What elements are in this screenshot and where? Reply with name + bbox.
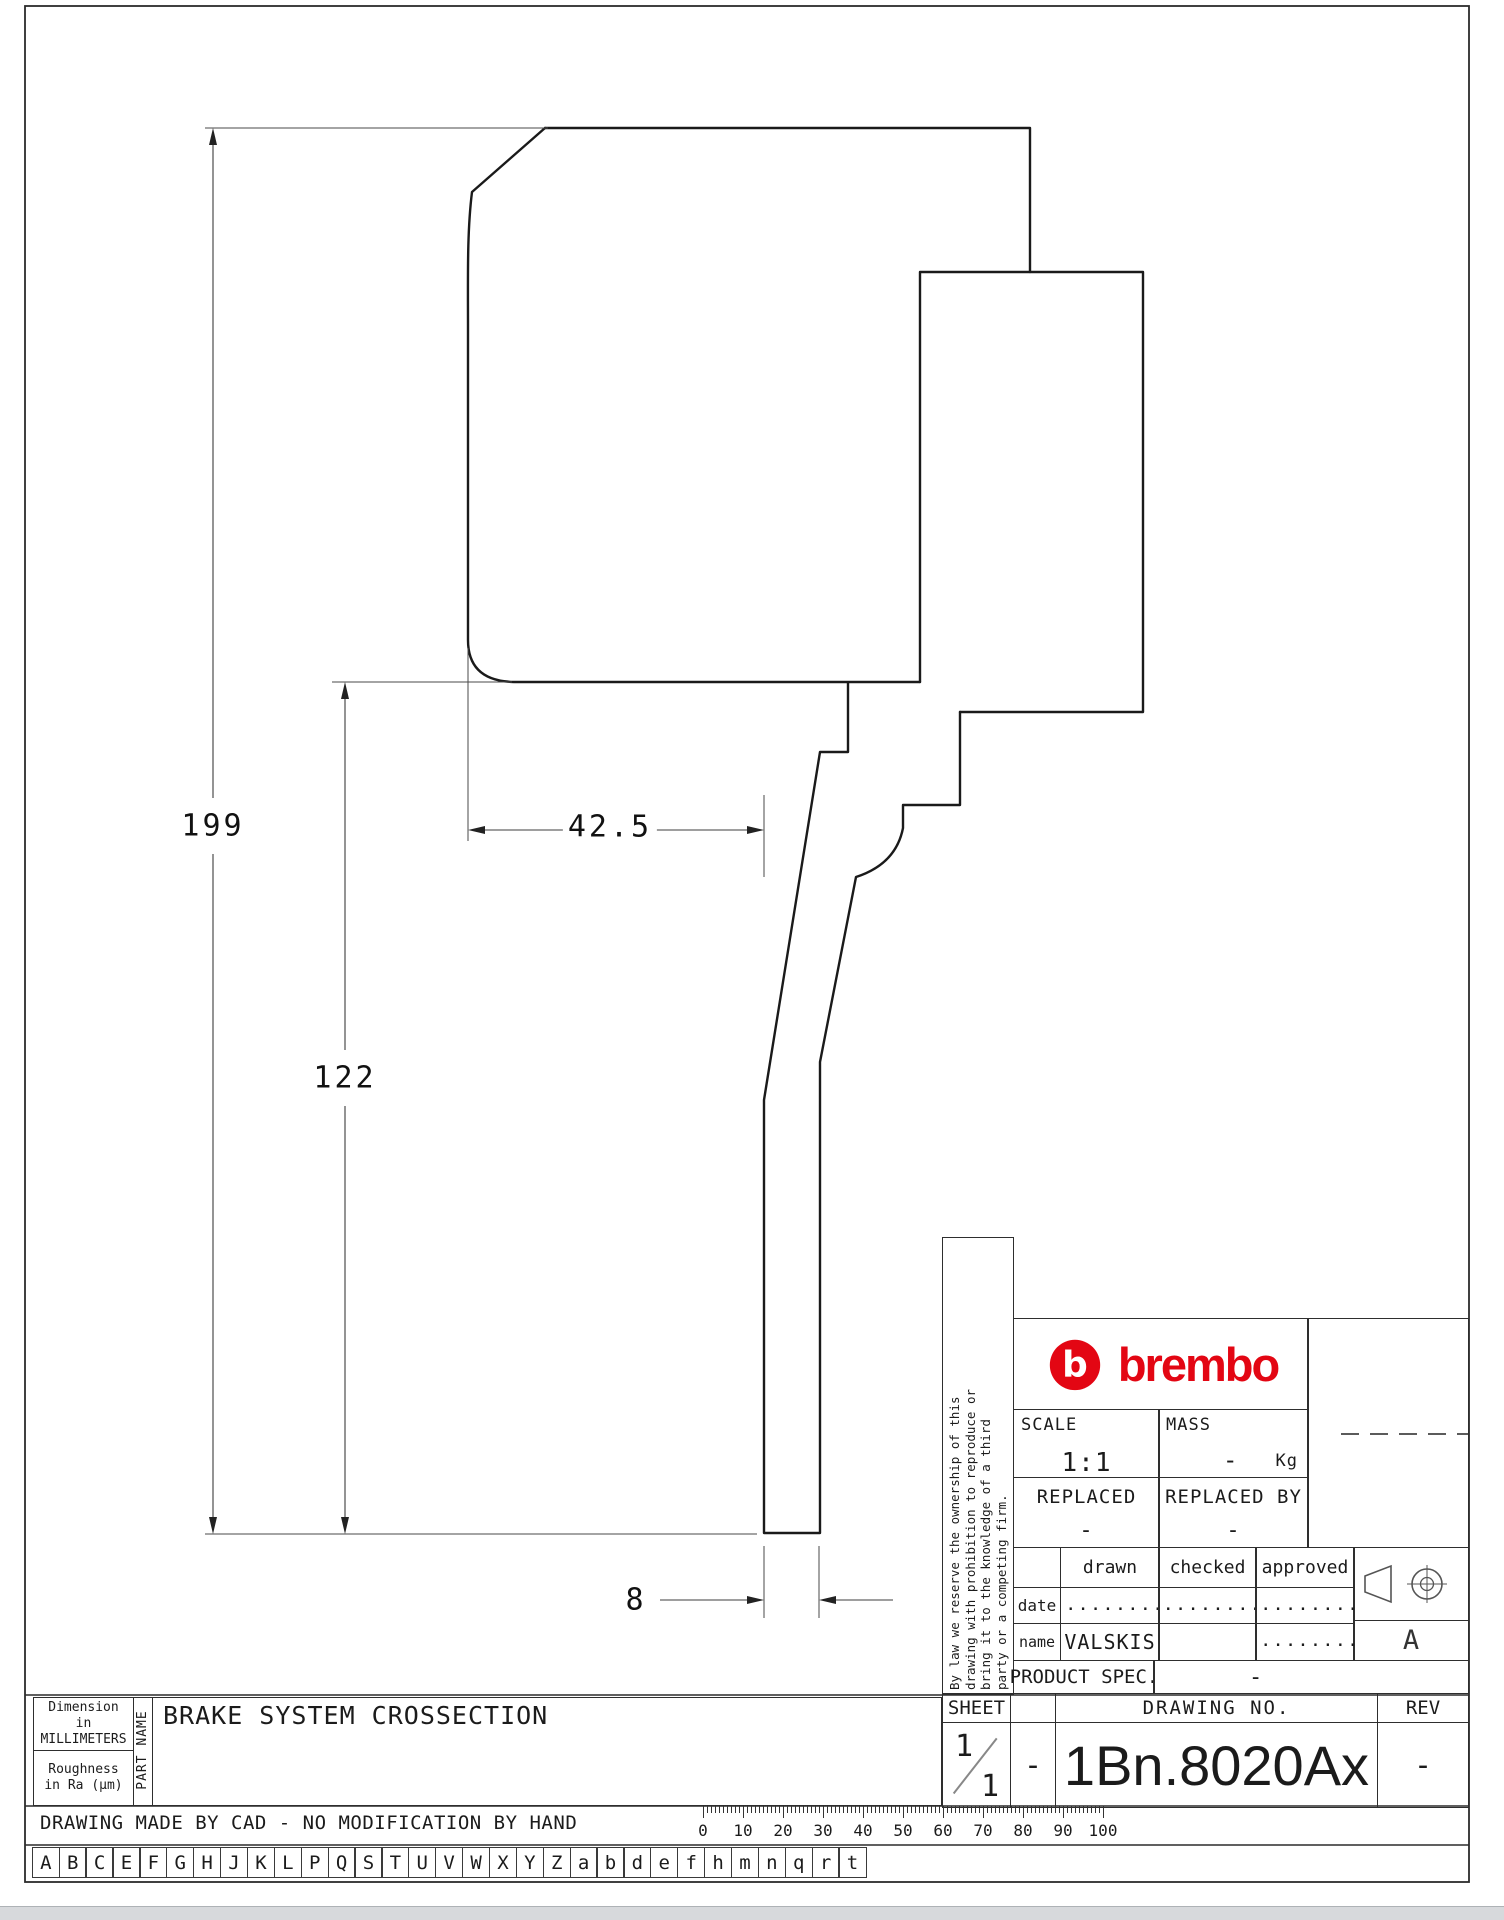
ruler-tick — [855, 1806, 856, 1813]
ruler-tick — [1047, 1806, 1048, 1813]
legal-strip: By law we reserve the ownership of this … — [942, 1237, 1014, 1695]
alphabet-cell: L — [274, 1847, 302, 1878]
date-approved-dots: ......... — [1255, 1587, 1355, 1624]
cad-note: DRAWING MADE BY CAD - NO MODIFICATION BY… — [40, 1812, 577, 1834]
product-spec-value-cell: - — [1153, 1660, 1469, 1694]
ruler-tick — [891, 1806, 892, 1813]
ruler-tick — [831, 1806, 832, 1813]
revision-letter-cell: A — [1353, 1620, 1469, 1661]
ruler-tick — [859, 1806, 860, 1813]
replaced-cell: REPLACED - — [1013, 1477, 1160, 1548]
ruler-tick — [1043, 1806, 1044, 1813]
scale-cell: SCALE 1:1 — [1013, 1409, 1160, 1478]
replaced-value: - — [1079, 1518, 1093, 1543]
dim-leg-width: 8 — [620, 1583, 651, 1618]
ruler-tick — [871, 1806, 872, 1813]
ruler-label: 40 — [853, 1821, 872, 1840]
rev-value: - — [1377, 1722, 1469, 1808]
alphabet-cell: E — [112, 1847, 140, 1878]
projection-symbol-cell — [1353, 1547, 1469, 1621]
sheet-num: 1 — [955, 1729, 974, 1764]
ruler-tick — [1035, 1806, 1036, 1813]
ruler-tick — [719, 1806, 720, 1813]
legal-text: By law we reserve the ownership of this … — [947, 1238, 1011, 1690]
ruler-tick — [795, 1806, 796, 1813]
sheet-den: 1 — [981, 1769, 1000, 1804]
ruler-label: 70 — [973, 1821, 992, 1840]
drawn-header: drawn — [1060, 1547, 1160, 1588]
alphabet-cell: C — [85, 1847, 113, 1878]
extension-lines — [205, 128, 819, 1618]
ruler-tick — [939, 1806, 940, 1813]
brand-wordmark: brembo — [1118, 1337, 1278, 1392]
scale-label: SCALE — [1021, 1415, 1077, 1435]
ruler-tick — [723, 1806, 724, 1813]
svg-text:b: b — [1062, 1345, 1088, 1386]
ruler-tick — [895, 1806, 896, 1813]
dimension-lines — [209, 128, 893, 1604]
ruler-tick — [1023, 1806, 1024, 1818]
scale-ruler: 0102030405060708090100 — [703, 1806, 1107, 1844]
name-label: name — [1013, 1623, 1061, 1661]
approved-header: approved — [1255, 1547, 1355, 1588]
ruler-tick — [839, 1806, 840, 1813]
alphabet-cell: a — [570, 1847, 598, 1878]
ruler-tick — [875, 1806, 876, 1813]
mass-label: MASS — [1166, 1415, 1211, 1435]
alphabet-cell: V — [435, 1847, 463, 1878]
ruler-tick — [811, 1806, 812, 1813]
dim-lower-height: 122 — [308, 1061, 381, 1096]
ruler-tick — [731, 1806, 732, 1813]
ruler-tick — [751, 1806, 752, 1813]
ruler-tick — [967, 1806, 968, 1813]
ruler-tick — [755, 1806, 756, 1813]
alphabet-cell: J — [220, 1847, 248, 1878]
reference-cell — [1307, 1318, 1469, 1548]
alphabet-cell: T — [381, 1847, 409, 1878]
alphabet-cell: K — [247, 1847, 275, 1878]
ruler-tick — [999, 1806, 1000, 1813]
ruler-tick — [915, 1806, 916, 1813]
ruler-tick — [779, 1806, 780, 1813]
alphabet-cell: h — [704, 1847, 732, 1878]
ruler-tick — [1015, 1806, 1016, 1813]
alphabet-cell: S — [354, 1847, 382, 1878]
ruler-label: 30 — [813, 1821, 832, 1840]
ruler-tick — [819, 1806, 820, 1813]
mass-unit: Kg — [1276, 1451, 1298, 1471]
dim-total-height: 199 — [176, 809, 249, 844]
ruler-tick — [887, 1806, 888, 1813]
ruler-tick — [995, 1806, 996, 1813]
ruler-tick — [927, 1806, 928, 1813]
alphabet-cell: H — [193, 1847, 221, 1878]
alphabet-cell: X — [489, 1847, 517, 1878]
ruler-tick — [987, 1806, 988, 1813]
ruler-label: 0 — [698, 1821, 708, 1840]
ruler-tick — [1075, 1806, 1076, 1813]
ruler-tick — [707, 1806, 708, 1813]
replaced-by-label: REPLACED BY — [1165, 1486, 1302, 1508]
ruler-label: 60 — [933, 1821, 952, 1840]
ruler-tick — [715, 1806, 716, 1813]
alphabet-cell: B — [59, 1847, 87, 1878]
mass-cell: MASS - Kg — [1158, 1409, 1309, 1478]
ruler-tick — [1071, 1806, 1072, 1813]
alphabet-row: ABCEFGHJKLPQSTUVWXYZabdefhmnqrt — [33, 1847, 867, 1880]
ruler-tick — [1091, 1806, 1092, 1813]
ruler-tick — [1067, 1806, 1068, 1813]
ruler-tick — [763, 1806, 764, 1813]
ruler-tick — [767, 1806, 768, 1813]
ruler-tick — [759, 1806, 760, 1813]
replaced-by-value: - — [1226, 1518, 1240, 1543]
ruler-tick — [903, 1806, 904, 1818]
ruler-tick — [847, 1806, 848, 1813]
part-title-cell: BRAKE SYSTEM CROSSECTION — [152, 1697, 942, 1806]
drawing-sheet: 199 122 42.5 8 By law we reserve the own… — [0, 0, 1504, 1920]
alphabet-cell: t — [838, 1847, 866, 1878]
ruler-tick — [851, 1806, 852, 1813]
ruler-tick — [843, 1806, 844, 1813]
alphabet-cell: G — [166, 1847, 194, 1878]
alphabet-cell: A — [32, 1847, 60, 1878]
ruler-tick — [883, 1806, 884, 1813]
alphabet-cell: U — [408, 1847, 436, 1878]
ruler-tick — [963, 1806, 964, 1813]
ruler-tick — [863, 1806, 864, 1818]
alphabet-cell: d — [623, 1847, 651, 1878]
date-label: date — [1013, 1587, 1061, 1624]
ruler-tick — [935, 1806, 936, 1813]
roughness-units-cell: Roughness in Ra (μm) — [33, 1750, 134, 1806]
dim-upper-width: 42.5 — [563, 810, 657, 845]
ruler-tick — [703, 1806, 704, 1818]
checked-name-cell — [1158, 1623, 1257, 1661]
ruler-label: 90 — [1053, 1821, 1072, 1840]
date-drawn-dots: ......... — [1060, 1587, 1160, 1624]
alphabet-cell: q — [785, 1847, 813, 1878]
ruler-label: 20 — [773, 1821, 792, 1840]
ruler-tick — [1063, 1806, 1064, 1818]
alphabet-cell: W — [462, 1847, 490, 1878]
mass-value: - — [1223, 1446, 1238, 1474]
ruler-tick — [735, 1806, 736, 1813]
ruler-tick — [983, 1806, 984, 1818]
brembo-logo-icon: b — [1044, 1333, 1106, 1395]
ruler-tick — [815, 1806, 816, 1813]
ruler-tick — [1083, 1806, 1084, 1813]
replaced-by-cell: REPLACED BY - — [1158, 1477, 1309, 1548]
ruler-tick — [1007, 1806, 1008, 1813]
alphabet-cell: P — [301, 1847, 329, 1878]
alphabet-cell: f — [677, 1847, 705, 1878]
ruler-tick — [827, 1806, 828, 1813]
ruler-tick — [907, 1806, 908, 1813]
ruler-tick — [771, 1806, 772, 1813]
ruler-label: 100 — [1089, 1821, 1118, 1840]
part-name-label: PART NAME — [135, 1698, 151, 1802]
alphabet-cell: Q — [328, 1847, 356, 1878]
ruler-tick — [1031, 1806, 1032, 1813]
ruler-tick — [959, 1806, 960, 1813]
ruler-tick — [807, 1806, 808, 1813]
ruler-tick — [947, 1806, 948, 1813]
ruler-tick — [975, 1806, 976, 1813]
ruler-tick — [867, 1806, 868, 1813]
ruler-tick — [979, 1806, 980, 1813]
ruler-tick — [1019, 1806, 1020, 1813]
ruler-tick — [1099, 1806, 1100, 1813]
sheet-subcell — [1010, 1693, 1056, 1723]
checked-header: checked — [1158, 1547, 1257, 1588]
ruler-label: 10 — [733, 1821, 752, 1840]
ruler-tick — [727, 1806, 728, 1813]
ruler-tick — [1027, 1806, 1028, 1813]
ruler-tick — [783, 1806, 784, 1818]
ruler-tick — [879, 1806, 880, 1813]
ruler-tick — [787, 1806, 788, 1813]
sheet-header: SHEET — [942, 1693, 1011, 1723]
scale-value: 1:1 — [1062, 1448, 1112, 1478]
col2-value: - — [1010, 1722, 1056, 1808]
part-title: BRAKE SYSTEM CROSSECTION — [163, 1701, 548, 1730]
ruler-tick — [919, 1806, 920, 1813]
alphabet-cell: b — [596, 1847, 624, 1878]
alphabet-cell: Z — [543, 1847, 571, 1878]
ruler-tick — [823, 1806, 824, 1818]
ruler-tick — [791, 1806, 792, 1813]
window-bottom-bar — [0, 1906, 1504, 1920]
approved-name-dots: ......... — [1255, 1623, 1355, 1661]
ruler-label: 50 — [893, 1821, 912, 1840]
brand-cell: b brembo — [1013, 1318, 1309, 1410]
alphabet-cell: m — [731, 1847, 759, 1878]
ruler-tick — [1087, 1806, 1088, 1813]
ruler-tick — [991, 1806, 992, 1813]
ruler-tick — [1039, 1806, 1040, 1813]
ruler-tick — [803, 1806, 804, 1813]
ruler-tick — [899, 1806, 900, 1813]
ruler-tick — [739, 1806, 740, 1813]
product-spec-value: - — [1249, 1665, 1263, 1690]
product-spec-label: PRODUCT SPEC. — [1013, 1660, 1155, 1694]
ruler-tick — [923, 1806, 924, 1813]
signoff-corner-cell — [1013, 1547, 1061, 1588]
replaced-label: REPLACED — [1037, 1486, 1137, 1508]
ruler-tick — [943, 1806, 944, 1818]
dimensions-units-cell: Dimension in MILLIMETERS — [33, 1697, 134, 1751]
ruler-tick — [743, 1806, 744, 1818]
alphabet-cell: r — [812, 1847, 840, 1878]
ruler-tick — [1051, 1806, 1052, 1813]
alphabet-cell: n — [758, 1847, 786, 1878]
ruler-tick — [1003, 1806, 1004, 1813]
alphabet-cell: F — [139, 1847, 167, 1878]
ruler-tick — [1095, 1806, 1096, 1813]
alphabet-cell: Y — [516, 1847, 544, 1878]
ruler-tick — [1103, 1806, 1104, 1818]
ruler-label: 80 — [1013, 1821, 1032, 1840]
ruler-tick — [1011, 1806, 1012, 1813]
ruler-tick — [1059, 1806, 1060, 1813]
ruler-tick — [799, 1806, 800, 1813]
projection-symbol-icon — [1361, 1562, 1461, 1606]
ruler-tick — [747, 1806, 748, 1813]
alphabet-cell: e — [650, 1847, 678, 1878]
ruler-tick — [711, 1806, 712, 1813]
ruler-tick — [971, 1806, 972, 1813]
drawing-no-header: DRAWING NO. — [1055, 1693, 1378, 1723]
part-name-cell: PART NAME — [133, 1697, 153, 1806]
ruler-tick — [931, 1806, 932, 1813]
date-checked-dots: ......... — [1158, 1587, 1257, 1624]
sheet-value-cell: 1 1 — [942, 1722, 1011, 1808]
rev-header: REV — [1377, 1693, 1469, 1723]
ruler-tick — [951, 1806, 952, 1813]
drawing-no-value: 1Bn.8020Ax — [1055, 1722, 1378, 1808]
ruler-tick — [1079, 1806, 1080, 1813]
ruler-tick — [835, 1806, 836, 1813]
ruler-tick — [911, 1806, 912, 1813]
ruler-tick — [955, 1806, 956, 1813]
ruler-tick — [1055, 1806, 1056, 1813]
drawn-name: VALSKIS — [1060, 1623, 1160, 1661]
ruler-tick — [775, 1806, 776, 1813]
